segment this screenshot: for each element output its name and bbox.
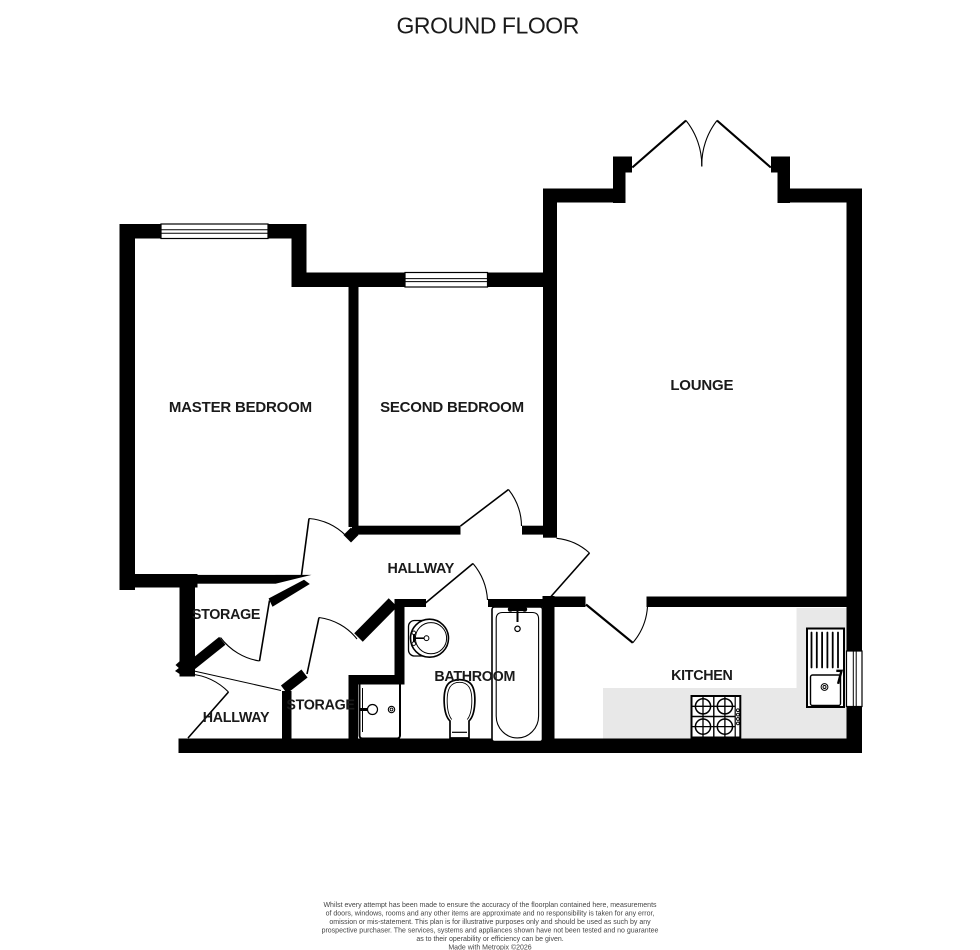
svg-text:as to their operability or eff: as to their operability or efficiency ca… xyxy=(416,936,563,943)
svg-text:omission or mis-statement. Thi: omission or mis-statement. This plan is … xyxy=(329,919,651,926)
svg-text:Whilst every attempt has been: Whilst every attempt has been made to en… xyxy=(323,902,657,909)
svg-text:of doors, windows, rooms and a: of doors, windows, rooms and any other i… xyxy=(326,911,655,918)
svg-text:GROUND FLOOR: GROUND FLOOR xyxy=(396,13,578,39)
svg-text:SECOND BEDROOM: SECOND BEDROOM xyxy=(380,399,524,416)
svg-text:HALLWAY: HALLWAY xyxy=(203,710,270,726)
svg-text:LOUNGE: LOUNGE xyxy=(670,377,733,394)
svg-text:prospective purchaser. The ser: prospective purchaser. The services, sys… xyxy=(322,928,659,935)
svg-text:MASTER BEDROOM: MASTER BEDROOM xyxy=(169,399,312,416)
svg-text:HALLWAY: HALLWAY xyxy=(387,561,454,577)
svg-text:STORAGE: STORAGE xyxy=(192,607,260,623)
svg-text:STORAGE: STORAGE xyxy=(286,698,354,714)
svg-text:KITCHEN: KITCHEN xyxy=(671,668,732,684)
svg-text:BATHROOM: BATHROOM xyxy=(434,669,515,685)
svg-text:Made with Metropix ©2026: Made with Metropix ©2026 xyxy=(448,944,531,950)
